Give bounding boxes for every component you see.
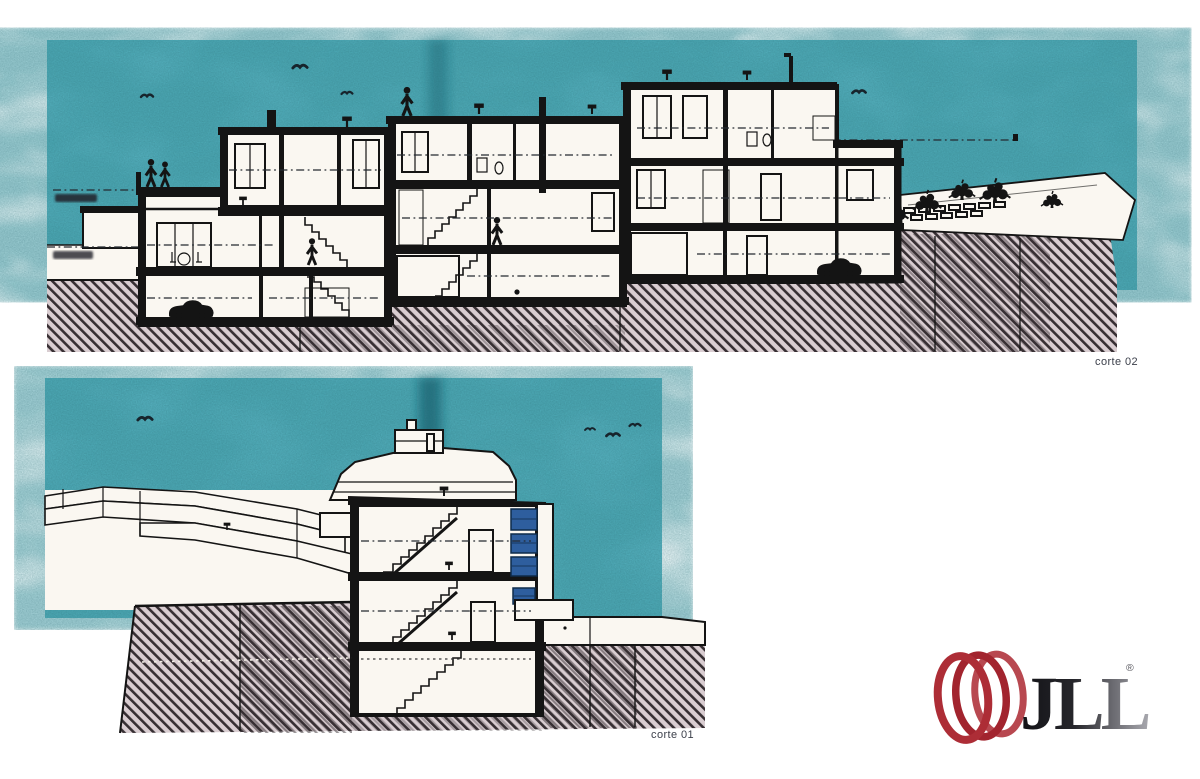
terraced-terrain <box>45 487 352 610</box>
illegible-elevation-mark <box>53 251 93 259</box>
building-middle-section <box>386 87 629 305</box>
pet-mark <box>514 289 519 294</box>
section-label-corte-02: corte 02 <box>1078 356 1138 368</box>
door <box>747 236 767 275</box>
left-ledge <box>320 513 352 537</box>
section-label-corte-01: corte 01 <box>634 729 694 741</box>
section-drawing-corte-01 <box>45 378 705 733</box>
scanned-architectural-page: JLL ® corte 02 corte 01 <box>0 0 1200 779</box>
chimney <box>407 420 416 430</box>
door <box>469 530 493 572</box>
door <box>761 174 781 220</box>
registered-trademark-icon: ® <box>1126 662 1134 674</box>
jll-logo: JLL ® <box>934 652 1149 746</box>
illegible-elevation-mark <box>55 194 97 202</box>
sections-drawing-svg: JLL ® <box>0 0 1200 779</box>
balcony-platform <box>515 600 573 620</box>
section-drawing-corte-02 <box>47 40 1137 352</box>
door <box>471 602 495 642</box>
jll-rings-icon <box>934 652 1027 743</box>
roof-door <box>427 434 434 451</box>
jll-wordmark: JLL <box>1020 662 1149 746</box>
right-platform-band <box>542 617 705 645</box>
